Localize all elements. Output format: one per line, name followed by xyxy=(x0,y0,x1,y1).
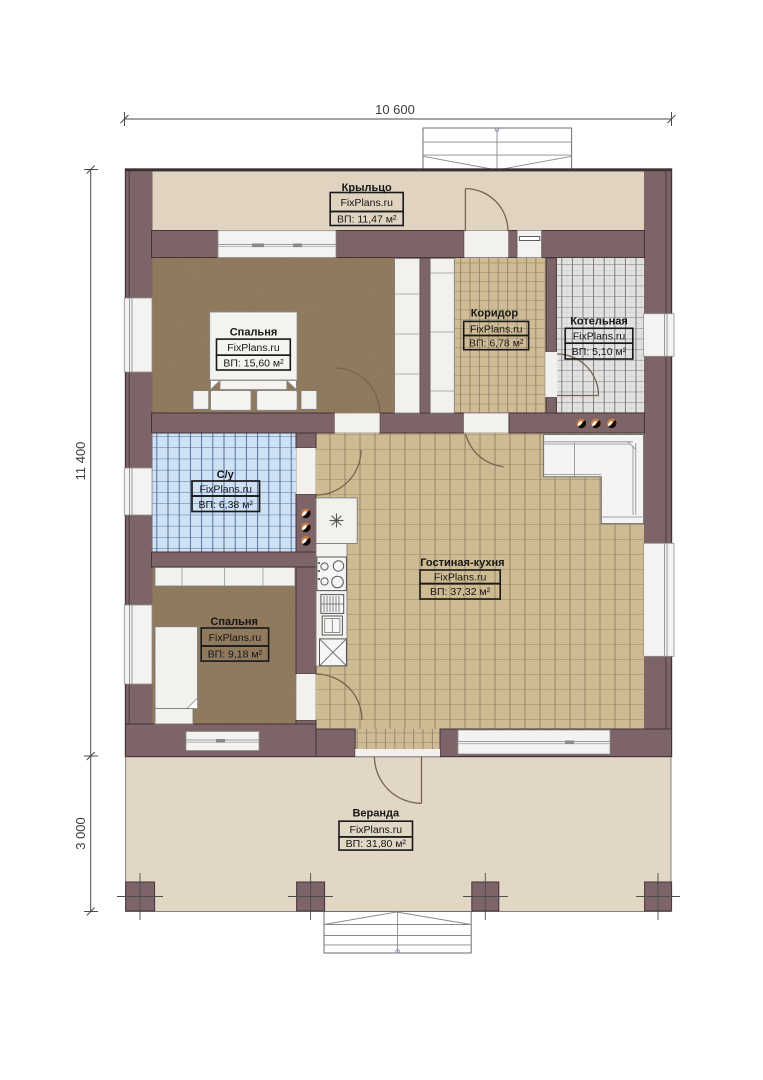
svg-text:ВП: 6,38 м²: ВП: 6,38 м² xyxy=(198,499,253,511)
svg-text:ВП: 15,60 м²: ВП: 15,60 м² xyxy=(223,358,284,370)
svg-text:Спальня: Спальня xyxy=(230,326,278,338)
svg-text:FixPlans.ru: FixPlans.ru xyxy=(434,572,487,584)
svg-text:С/у: С/у xyxy=(217,469,235,481)
svg-text:FixPlans.ru: FixPlans.ru xyxy=(470,323,523,335)
svg-text:ВП: 11,47 м²: ВП: 11,47 м² xyxy=(337,213,397,225)
svg-text:ВП: 5,10 м²: ВП: 5,10 м² xyxy=(572,346,627,358)
svg-text:FixPlans.ru: FixPlans.ru xyxy=(199,483,252,495)
svg-text:FixPlans.ru: FixPlans.ru xyxy=(573,331,626,343)
svg-text:Спальня: Спальня xyxy=(210,616,258,628)
svg-text:ВП: 37,32 м²: ВП: 37,32 м² xyxy=(430,586,491,598)
svg-text:Гостиная-кухня: Гостиная-кухня xyxy=(420,557,504,569)
svg-text:Коридор: Коридор xyxy=(471,308,519,320)
svg-text:FixPlans.ru: FixPlans.ru xyxy=(227,342,280,354)
svg-text:FixPlans.ru: FixPlans.ru xyxy=(350,824,403,836)
svg-text:FixPlans.ru: FixPlans.ru xyxy=(340,197,393,209)
svg-text:Веранда: Веранда xyxy=(352,808,400,820)
svg-text:ВП: 9,18 м²: ВП: 9,18 м² xyxy=(208,648,263,660)
svg-text:3 000: 3 000 xyxy=(73,817,88,850)
svg-text:FixPlans.ru: FixPlans.ru xyxy=(209,632,262,644)
svg-text:10 600: 10 600 xyxy=(375,102,415,117)
svg-text:Котельная: Котельная xyxy=(570,316,628,328)
svg-text:ВП: 6,78 м²: ВП: 6,78 м² xyxy=(469,338,524,350)
svg-text:ВП: 31,80 м²: ВП: 31,80 м² xyxy=(346,838,407,850)
svg-text:11 400: 11 400 xyxy=(73,442,88,481)
